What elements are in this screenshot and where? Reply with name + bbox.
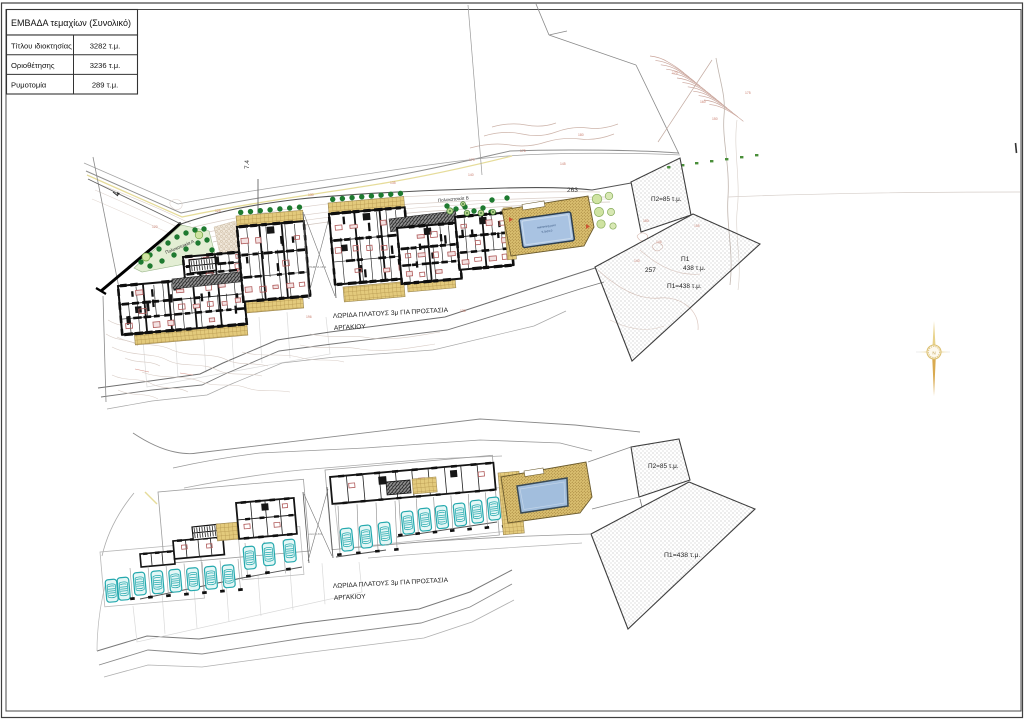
svg-text:180: 180 [578,133,584,137]
svg-text:140: 140 [468,173,474,177]
svg-text:7.4: 7.4 [244,160,251,169]
svg-text:N: N [932,351,935,356]
svg-text:438 τ.μ.: 438 τ.μ. [683,265,706,272]
svg-text:130: 130 [308,193,314,197]
svg-text:175: 175 [520,149,526,153]
svg-text:160: 160 [700,100,706,104]
svg-text:145: 145 [560,162,566,166]
svg-text:Π1=438 τ.μ.: Π1=438 τ.μ. [664,552,700,559]
svg-text:Π1=438 τ.μ.: Π1=438 τ.μ. [667,283,702,290]
svg-text:136: 136 [460,309,466,313]
svg-text:135: 135 [390,181,396,185]
svg-text:3282 τ.μ.: 3282 τ.μ. [90,42,121,51]
svg-text:3236 τ.μ.: 3236 τ.μ. [90,61,121,70]
svg-text:196: 196 [306,315,312,319]
svg-text:125: 125 [215,209,221,213]
svg-text:120: 120 [152,225,158,229]
svg-text:ΕΜΒΑΔΑ τεμαχίων (Συνολικό): ΕΜΒΑΔΑ τεμαχίων (Συνολικό) [11,18,131,28]
svg-text:κλίση 16%: κλίση 16% [308,532,322,536]
svg-text:Τίτλου ιδιοκτησίας: Τίτλου ιδιοκτησίας [11,42,72,51]
svg-text:150: 150 [712,117,718,121]
svg-text:Π2=85 τ.μ.: Π2=85 τ.μ. [648,463,679,470]
svg-text:289 τ.μ.: 289 τ.μ. [92,81,118,90]
svg-text:263: 263 [567,187,578,194]
svg-text:Π1: Π1 [681,256,690,263]
svg-text:Ρυμοτομία: Ρυμοτομία [11,81,47,90]
svg-text:Π2=85 τ.μ.: Π2=85 τ.μ. [651,196,682,203]
svg-text:175: 175 [745,91,751,95]
svg-text:ΡΑΜΠΑ 16%: ΡΑΜΠΑ 16% [309,265,326,269]
svg-text:170: 170 [672,71,678,75]
svg-text:Οριοθέτησης: Οριοθέτησης [11,61,55,70]
svg-text:257: 257 [645,267,656,274]
svg-text:170: 170 [469,158,475,162]
